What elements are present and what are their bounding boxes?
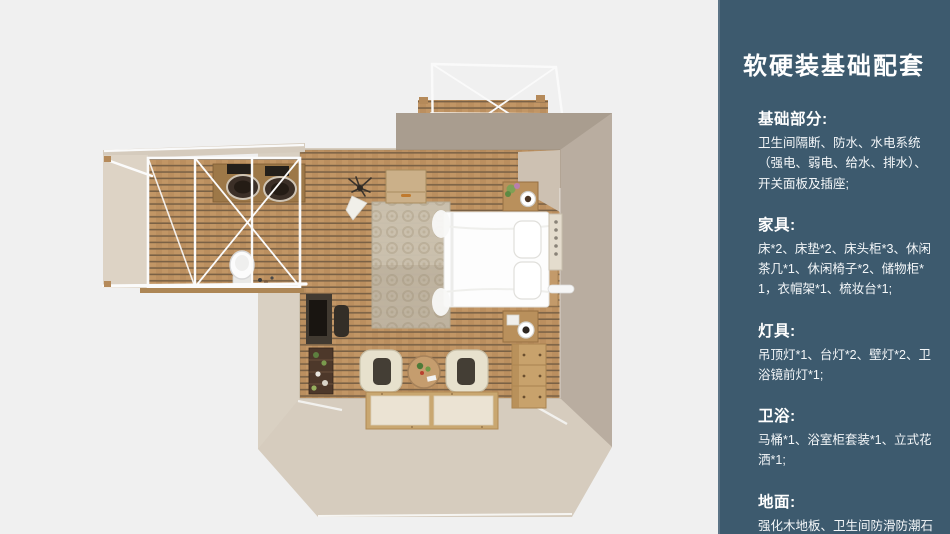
mirror: [227, 164, 251, 174]
seat-cushion: [373, 358, 391, 385]
section-heading: 灯具:: [758, 319, 936, 341]
closet-wall: [103, 155, 148, 288]
section-body: 卫生间隔断、防水、水电系统（强电、弱电、给水、排水）、开关面板及插座;: [758, 133, 936, 194]
ladder-shelf: [309, 348, 333, 394]
info-panel: 软硬装基础配套 基础部分: 卫生间隔断、防水、水电系统（强电、弱电、给水、排水）…: [718, 0, 950, 534]
section-basics: 基础部分: 卫生间隔断、防水、水电系统（强电、弱电、给水、排水）、开关面板及插座…: [758, 107, 936, 194]
storage-cabinet: [386, 170, 426, 203]
toilet: [230, 251, 254, 285]
section-body: 强化木地板、卫生间防滑防潮石塑板;: [758, 516, 936, 534]
vanity-table: [549, 214, 562, 270]
seat-cushion: [457, 358, 475, 385]
nightstand-top: [503, 182, 538, 211]
section-heading: 地面:: [758, 490, 936, 512]
armchair-right: [446, 350, 488, 392]
pillow: [514, 262, 541, 299]
section-flooring: 地面: 强化木地板、卫生间防滑防潮石塑板;: [758, 490, 936, 534]
wall-lamp: [548, 285, 574, 293]
fur-throw: [432, 288, 450, 316]
page: 软硬装基础配套 基础部分: 卫生间隔断、防水、水电系统（强电、弱电、给水、排水）…: [0, 0, 950, 534]
section-heading: 基础部分:: [758, 107, 936, 129]
armchair-left: [360, 350, 402, 392]
mirror: [265, 166, 289, 176]
desk-chair: [334, 305, 349, 337]
section-body: 马桶*1、浴室柜套装*1、立式花洒*1;: [758, 430, 936, 471]
pillow: [514, 221, 541, 258]
bathroom-wing: [103, 143, 306, 293]
fur-throw: [432, 210, 450, 238]
floorplan-render: [0, 0, 718, 534]
section-bathroom: 卫浴: 马桶*1、浴室柜套装*1、立式花洒*1;: [758, 404, 936, 471]
plant: [313, 352, 319, 358]
section-heading: 家具:: [758, 213, 936, 235]
section-body: 床*2、床垫*2、床头柜*3、休闲茶几*1、休闲椅子*2、储物柜*1，衣帽架*1…: [758, 239, 936, 300]
drawer-handle: [401, 194, 411, 197]
section-heading: 卫浴:: [758, 404, 936, 426]
panel-title: 软硬装基础配套: [720, 0, 950, 81]
plant: [417, 363, 423, 369]
section-lighting: 灯具: 吊顶灯*1、台灯*2、壁灯*2、卫浴镜前灯*1;: [758, 319, 936, 386]
mattress-mat: [434, 396, 493, 425]
nightstand-bottom: [503, 311, 538, 342]
tea-table: [408, 356, 440, 388]
threshold-rail: [140, 288, 304, 293]
tv-screen: [309, 300, 327, 336]
mattress-mat: [371, 396, 429, 425]
floor-mattresses: [366, 392, 498, 429]
section-furniture: 家具: 床*2、床垫*2、床头柜*3、休闲茶几*1、休闲椅子*2、储物柜*1，衣…: [758, 213, 936, 300]
panel-sections: 基础部分: 卫生间隔断、防水、水电系统（强电、弱电、给水、排水）、开关面板及插座…: [720, 81, 950, 534]
dresser: [512, 344, 546, 408]
section-body: 吊顶灯*1、台灯*2、壁灯*2、卫浴镜前灯*1;: [758, 345, 936, 386]
bed: [432, 210, 558, 316]
